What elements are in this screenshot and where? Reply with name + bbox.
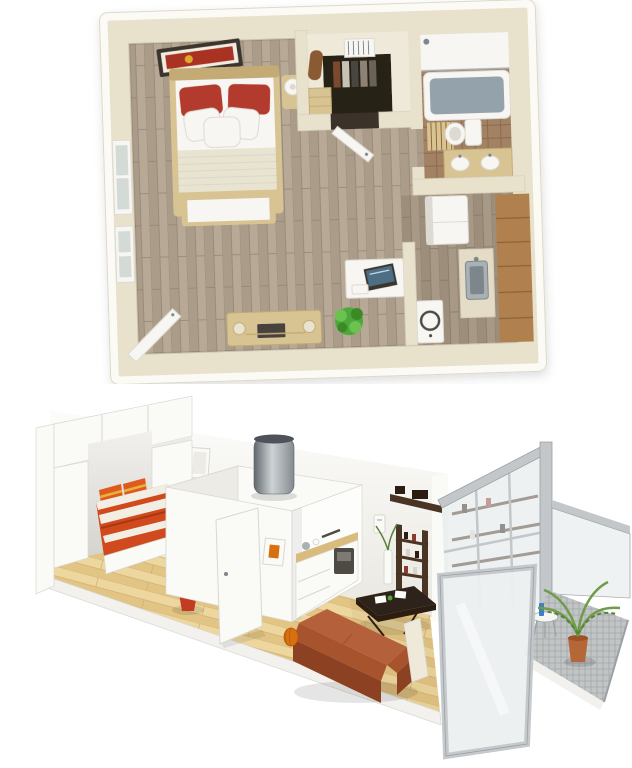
extractor-chimney [251, 435, 297, 502]
keyboard [352, 285, 368, 294]
window-pane [116, 178, 129, 209]
floor-plan-render [0, 0, 632, 384]
foot-bench-cushion [187, 198, 270, 223]
chimney-top [254, 435, 294, 444]
sink [451, 156, 469, 171]
toilet-tank [465, 119, 482, 145]
window-pane [118, 231, 131, 252]
plate [388, 596, 393, 601]
framed-art-front [263, 538, 286, 566]
isometric-render [0, 384, 632, 768]
tv [257, 323, 285, 338]
bathroom-doorway [411, 129, 424, 167]
left-wall-windows [112, 140, 134, 282]
twig-vase [384, 550, 392, 584]
floor-plan [99, 0, 546, 384]
door-handle [224, 572, 228, 576]
wardrobe-side [36, 424, 54, 594]
washing-machine [416, 300, 443, 343]
open-door [216, 508, 262, 644]
sink-counter [459, 249, 495, 318]
fridge [425, 195, 468, 244]
papers [395, 590, 407, 598]
media-console [227, 310, 322, 346]
oven-window [337, 552, 351, 561]
kettle [302, 542, 310, 550]
kitchen-top-wall [413, 176, 525, 196]
step-stool [309, 88, 332, 115]
shelf-item [395, 486, 405, 494]
sink-basin [469, 266, 484, 294]
speaker [303, 320, 315, 332]
shower-area [420, 32, 509, 71]
screenshot-root [0, 0, 632, 768]
pot [313, 539, 319, 545]
window-pane [119, 256, 132, 277]
isometric-svg [0, 384, 632, 768]
terracotta-pot [568, 638, 588, 662]
kitchen-cabinets [495, 194, 534, 343]
sink-vanity [444, 148, 513, 178]
corner-post [540, 442, 552, 614]
window-pane [115, 145, 128, 175]
floor-plan-svg [0, 0, 632, 384]
bed [169, 65, 284, 226]
gourd-decor [284, 628, 298, 646]
speaker [233, 323, 245, 335]
white-pillow [204, 117, 241, 148]
closet-clothes [333, 60, 377, 87]
outer-screen [552, 508, 630, 598]
bathtub-water [429, 76, 504, 114]
frosted-panel [440, 567, 534, 756]
bathroom [408, 24, 525, 195]
desk [345, 259, 404, 299]
sink [481, 155, 499, 170]
shelf-item [412, 490, 428, 499]
kitchen [401, 176, 534, 346]
wardrobe-left-panel [54, 461, 88, 568]
vestibule-bottom-wall [298, 114, 331, 131]
